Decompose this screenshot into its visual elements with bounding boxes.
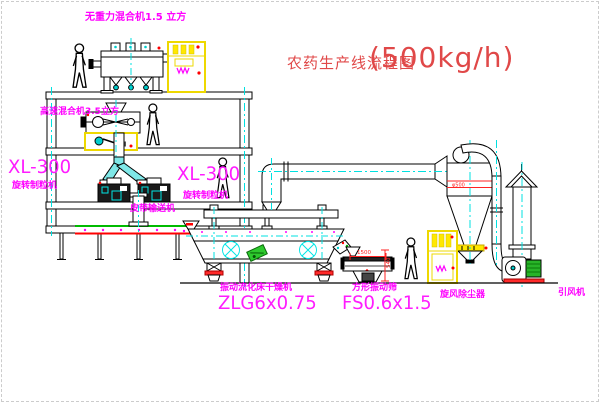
floor-slab-middle — [46, 148, 252, 155]
label-belt-conveyor: 皮带输送机 — [130, 205, 175, 214]
control-cabinet-right — [428, 231, 457, 283]
screen-height-dim: 540 — [386, 257, 392, 268]
floor-slab-top — [46, 92, 252, 99]
label-granulator-right-name: 旋转制粒机 — [183, 192, 228, 201]
exhaust-duct — [258, 156, 470, 212]
cad-flowsheet-drawing: 1500 540 φ500 农药生产线流程图 (500kg/h) 无重力混合机1… — [0, 0, 600, 403]
gravity-free-mixer — [89, 38, 178, 93]
drawing-title-capacity: (500kg/h) — [369, 44, 514, 72]
vibrating-screen — [333, 240, 394, 282]
screen-length-dim: 1500 — [357, 250, 371, 256]
cyclone-diameter-dim: φ500 — [452, 183, 465, 189]
worker-second-floor — [147, 104, 159, 145]
dryer-spring-support-right — [315, 263, 333, 281]
label-granulator-right-model: XL-300 — [177, 165, 240, 184]
fluid-bed-dryer — [183, 205, 344, 281]
label-screen-model: FS0.6x1.5 — [342, 294, 432, 313]
label-high-speed-mixer: 高速混合机3.5立方 — [40, 108, 119, 117]
control-cabinet-top — [168, 42, 205, 92]
label-dryer-model: ZLG6x0.75 — [218, 294, 317, 313]
worker-ground — [405, 238, 417, 279]
dryer-spring-support-left — [205, 263, 223, 281]
worker-top-floor — [73, 44, 86, 87]
dryer-suspension-frame — [204, 210, 338, 218]
label-gravity-mixer: 无重力混合机1.5 立方 — [85, 13, 186, 23]
dryer-bed — [188, 229, 344, 241]
support-legs — [57, 233, 182, 260]
label-granulator-left-model: XL-300 — [8, 158, 71, 177]
label-fan: 引风机 — [558, 289, 585, 298]
label-cyclone: 旋风除尘器 — [440, 291, 485, 300]
label-granulator-left-name: 旋转制粒机 — [12, 182, 57, 191]
